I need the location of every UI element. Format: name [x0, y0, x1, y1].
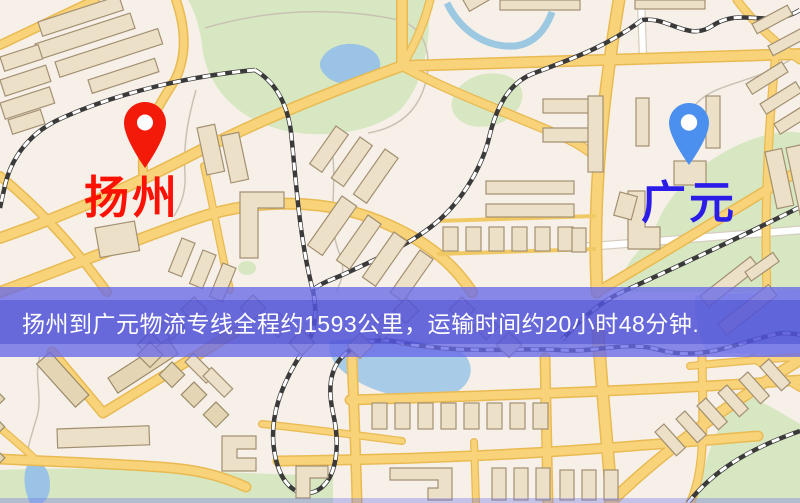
origin-label: 扬州 — [84, 176, 180, 221]
route-info-text: 扬州到广元物流专线全程约1593公里，运输时间约20小时48分钟. — [0, 305, 699, 339]
map-background — [0, 0, 800, 503]
origin-pin-icon[interactable] — [121, 100, 169, 172]
origin-pin-hole — [137, 115, 153, 131]
destination-label: 广元 — [641, 181, 737, 226]
map-view[interactable]: 扬州 广元 扬州到广元物流专线全程约1593公里，运输时间约20小时48分钟. — [0, 0, 800, 503]
destination-pin-icon[interactable] — [666, 101, 712, 169]
destination-pin-shape — [669, 103, 709, 165]
route-info-banner: 扬州到广元物流专线全程约1593公里，运输时间约20小时48分钟. — [0, 287, 800, 357]
bottom-overlay-strip — [0, 498, 800, 503]
origin-pin-shape — [124, 102, 166, 168]
destination-pin-hole — [681, 114, 697, 130]
